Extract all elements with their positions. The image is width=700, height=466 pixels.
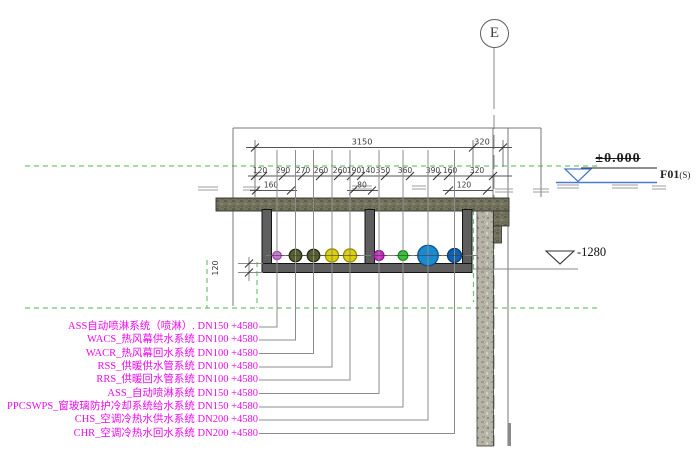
dimension-value: 3150	[352, 137, 373, 147]
label-leader-lines	[259, 150, 465, 434]
level-name-suffix: (S)	[679, 170, 690, 180]
dimension-value: 260	[314, 166, 329, 175]
grid-bubble-e: E	[480, 19, 509, 48]
dimension-value: 350	[376, 166, 391, 175]
dimension-value: 260	[333, 166, 348, 175]
system-label: CHS_空调冷热水供水系统 DN200 +4580	[75, 413, 258, 426]
pipe-trench	[262, 210, 472, 273]
concrete-wall	[477, 211, 509, 446]
dimension-value: 320	[470, 166, 485, 175]
system-label: RSS_供暖供水管系统 DN100 +4580	[97, 360, 258, 373]
dimension-value: 80	[357, 181, 367, 190]
drawing-canvas: 120 315032012029027026026019014035036039…	[0, 0, 700, 466]
dimension-value: 190	[347, 166, 362, 175]
level-zero-name: F01(S)	[660, 167, 690, 182]
system-label: CHR_空调冷热水回水系统 DN200 +4580	[74, 427, 258, 440]
system-label: WACR_热风幕回水系统 DN100 +4580	[86, 347, 258, 360]
grid-label: E	[490, 25, 499, 41]
system-label: RRS_供暖回水管系统 DN100 +4580	[96, 373, 258, 386]
level-zero-text: ±0.000	[579, 151, 657, 167]
level-marker-zero	[556, 168, 657, 183]
system-label: ASS_自动喷淋系统 DN150 +4580	[107, 387, 258, 400]
dimension-value: 360	[398, 166, 413, 175]
system-label-list: ASS自动喷淋系统（喷淋）. DN150 +4580WACS_热风幕供水系统 D…	[8, 0, 258, 466]
dimension-value: 120	[457, 181, 472, 190]
system-label: WACS_热风幕供水系统 DN100 +4580	[87, 333, 258, 346]
dimension-value: 270	[296, 166, 311, 175]
system-label: PPCSWPS_窗玻璃防护冷却系统给水系统 DN150 +4580	[7, 400, 258, 413]
level-triangle-icon	[565, 169, 591, 182]
dimension-value: 160	[264, 181, 279, 190]
level-minus1280-text: -1280	[577, 245, 606, 260]
dimension-value: 140	[361, 166, 376, 175]
dimension-value: 320	[474, 137, 490, 147]
spot-elevation-triangle-icon	[546, 251, 574, 264]
system-label: ASS自动喷淋系统（喷淋）. DN150 +4580	[68, 320, 258, 333]
dimension-value: 160	[443, 166, 458, 175]
level-name: F01	[660, 167, 679, 181]
dimension-value: 290	[276, 166, 291, 175]
